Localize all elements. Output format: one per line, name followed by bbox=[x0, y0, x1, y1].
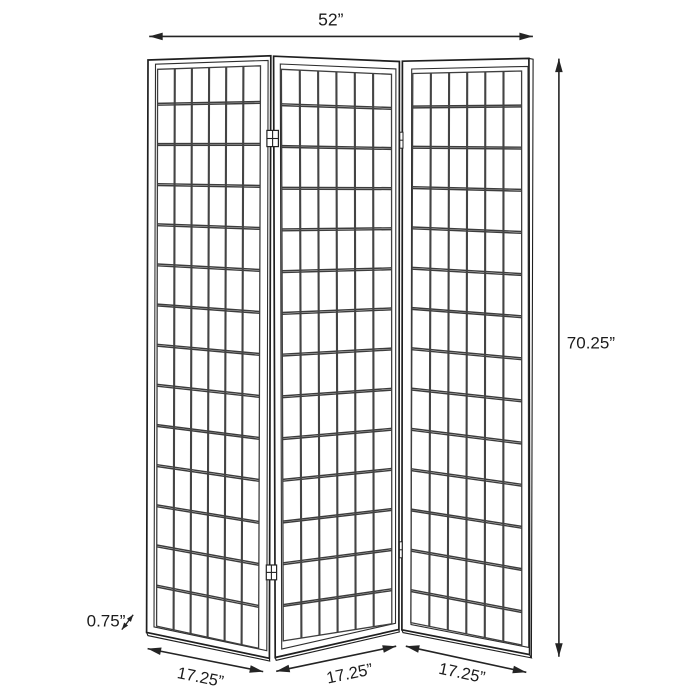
svg-text:52”: 52” bbox=[318, 10, 343, 30]
svg-text:70.25”: 70.25” bbox=[567, 333, 616, 352]
svg-text:0.75”: 0.75” bbox=[87, 611, 126, 630]
